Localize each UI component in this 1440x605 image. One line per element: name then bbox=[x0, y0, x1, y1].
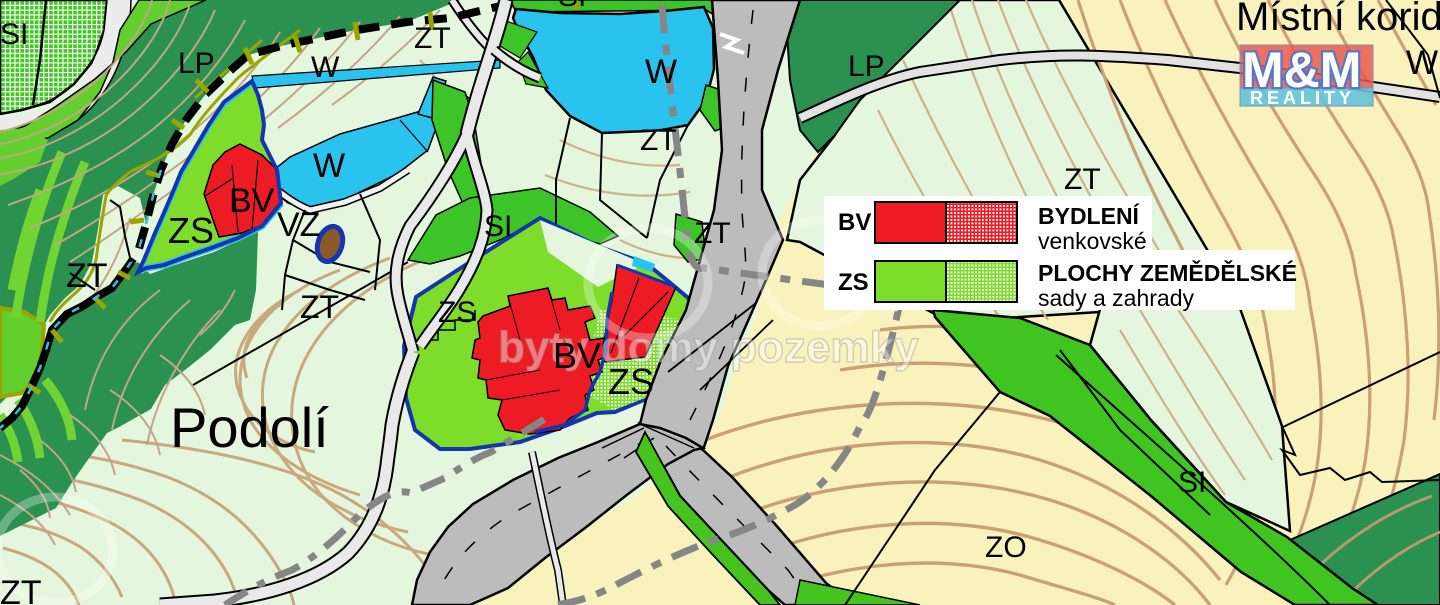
svg-text:BYDLENÍ: BYDLENÍ bbox=[1038, 202, 1140, 229]
svg-text:LP: LP bbox=[178, 47, 215, 80]
svg-text:BV: BV bbox=[229, 182, 275, 220]
svg-text:ZT: ZT bbox=[66, 257, 108, 295]
svg-text:ZT: ZT bbox=[414, 22, 451, 55]
svg-text:SI: SI bbox=[558, 0, 586, 13]
svg-text:ZS: ZS bbox=[608, 361, 654, 402]
svg-text:SI: SI bbox=[484, 210, 512, 243]
svg-text:ZO: ZO bbox=[985, 531, 1027, 564]
svg-text:ZS: ZS bbox=[838, 269, 869, 296]
svg-text:SI: SI bbox=[0, 18, 28, 51]
svg-text:ZT: ZT bbox=[0, 574, 42, 605]
svg-text:BV: BV bbox=[838, 209, 871, 236]
svg-text:sady a zahrady: sady a zahrady bbox=[1038, 285, 1194, 311]
svg-text:W: W bbox=[313, 147, 345, 185]
svg-text:venkovské: venkovské bbox=[1038, 228, 1147, 254]
svg-text:SI: SI bbox=[1178, 466, 1206, 499]
svg-text:W: W bbox=[311, 51, 340, 84]
svg-text:ZT: ZT bbox=[694, 217, 731, 250]
svg-text:ZT: ZT bbox=[300, 289, 339, 325]
svg-text:LP: LP bbox=[848, 50, 885, 83]
svg-text:ZT: ZT bbox=[1064, 163, 1101, 196]
svg-text:W: W bbox=[645, 53, 677, 91]
svg-text:REALITY: REALITY bbox=[1250, 88, 1355, 108]
svg-text:ZS: ZS bbox=[438, 296, 476, 329]
svg-text:VZ: VZ bbox=[277, 206, 320, 244]
svg-text:BV: BV bbox=[553, 335, 601, 376]
svg-text:Místní korid: Místní korid bbox=[1236, 0, 1440, 39]
svg-text:Podolí: Podolí bbox=[170, 396, 329, 459]
svg-text:W: W bbox=[1406, 44, 1438, 82]
svg-text:PLOCHY ZEMĚDĚLSKÉ: PLOCHY ZEMĚDĚLSKÉ bbox=[1038, 259, 1297, 286]
svg-text:ZT: ZT bbox=[640, 124, 677, 157]
svg-text:ZS: ZS bbox=[168, 210, 214, 251]
